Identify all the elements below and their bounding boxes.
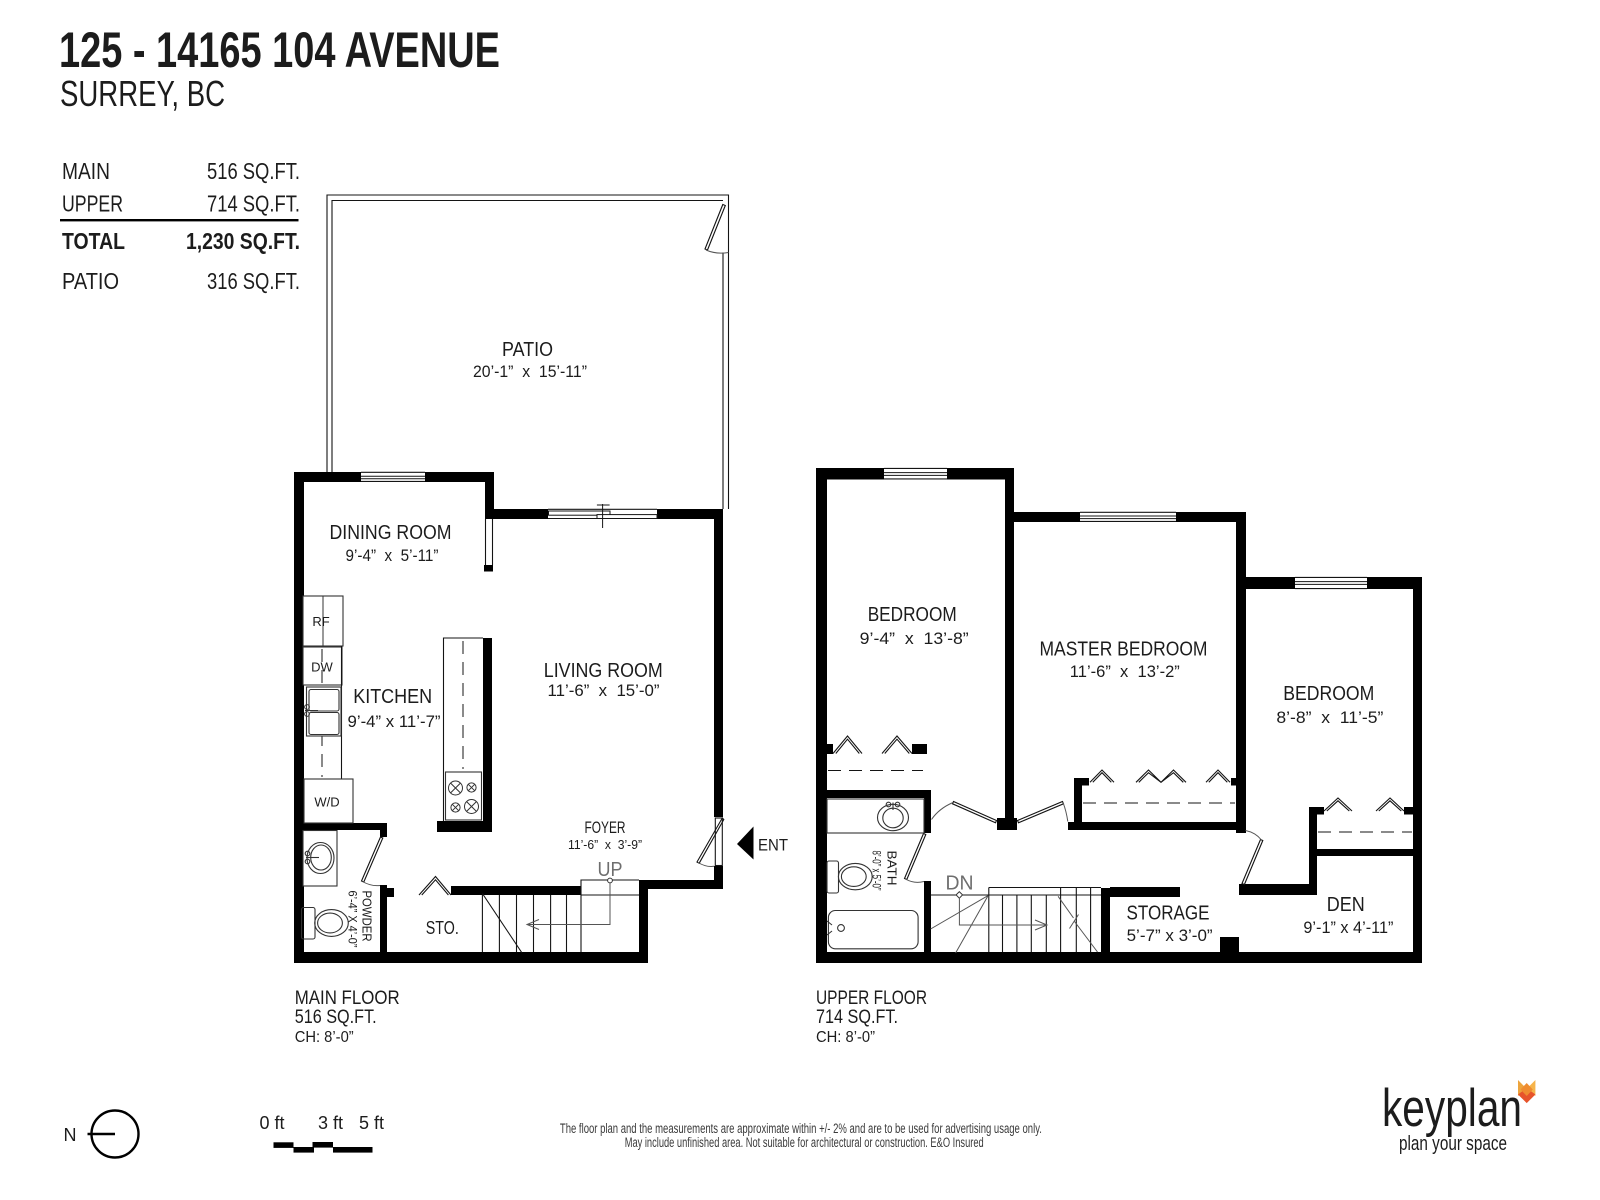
- svg-text:ENT: ENT: [758, 836, 788, 855]
- svg-text:CH: 8’-0”: CH: 8’-0”: [816, 1029, 875, 1046]
- svg-text:11’-6” x 3’-9”: 11’-6” x 3’-9”: [568, 837, 642, 852]
- svg-text:20’-1” x 15’-11”: 20’-1” x 15’-11”: [473, 362, 587, 381]
- svg-text:5 ft: 5 ft: [359, 1113, 384, 1133]
- svg-text:CH: 8’-0”: CH: 8’-0”: [295, 1029, 354, 1046]
- svg-text:MASTER BEDROOM: MASTER BEDROOM: [1040, 639, 1208, 661]
- svg-text:BEDROOM: BEDROOM: [868, 604, 957, 626]
- svg-text:keyplan: keyplan: [1382, 1079, 1522, 1138]
- svg-text:RF: RF: [312, 614, 329, 629]
- svg-text:UP: UP: [598, 859, 623, 881]
- svg-text:125 - 14165 104 AVENUE: 125 - 14165 104 AVENUE: [59, 22, 500, 78]
- svg-text:9’-4” x 13’-8”: 9’-4” x 13’-8”: [860, 629, 969, 648]
- svg-text:UPPER: UPPER: [62, 191, 123, 217]
- svg-text:STORAGE: STORAGE: [1127, 903, 1210, 925]
- svg-text:LIVING ROOM: LIVING ROOM: [544, 660, 663, 682]
- svg-text:BEDROOM: BEDROOM: [1283, 683, 1374, 705]
- svg-text:PATIO: PATIO: [62, 268, 119, 294]
- svg-text:May include unfinished area. N: May include unfinished area. Not suitabl…: [625, 1135, 984, 1150]
- svg-text:N: N: [64, 1125, 77, 1145]
- svg-text:plan your space: plan your space: [1399, 1132, 1507, 1155]
- svg-text:11’-6” x 15’-0”: 11’-6” x 15’-0”: [548, 681, 660, 700]
- svg-text:PATIO: PATIO: [502, 339, 553, 361]
- svg-text:UPPER FLOOR: UPPER FLOOR: [816, 987, 927, 1009]
- svg-text:516 SQ.FT.: 516 SQ.FT.: [295, 1007, 377, 1028]
- svg-text:W/D: W/D: [314, 795, 339, 810]
- svg-text:8’-0” x 5’-0”: 8’-0” x 5’-0”: [870, 851, 884, 891]
- svg-text:0 ft: 0 ft: [259, 1113, 284, 1133]
- svg-text:The floor plan and the measure: The floor plan and the measurements are …: [560, 1121, 1042, 1136]
- svg-text:714 SQ.FT.: 714 SQ.FT.: [207, 191, 300, 217]
- svg-text:STO.: STO.: [426, 917, 459, 938]
- svg-text:5’-7” x 3’-0”: 5’-7” x 3’-0”: [1127, 926, 1213, 945]
- svg-text:DEN: DEN: [1327, 894, 1365, 916]
- svg-text:9’-4” x 5’-11”: 9’-4” x 5’-11”: [346, 546, 439, 565]
- svg-text:8’-8” x 11’-5”: 8’-8” x 11’-5”: [1276, 708, 1383, 727]
- svg-text:516 SQ.FT.: 516 SQ.FT.: [207, 158, 300, 184]
- svg-text:SURREY, BC: SURREY, BC: [60, 73, 225, 114]
- svg-text:1,230 SQ.FT.: 1,230 SQ.FT.: [186, 228, 300, 254]
- svg-text:316 SQ.FT.: 316 SQ.FT.: [207, 268, 300, 294]
- svg-text:714 SQ.FT.: 714 SQ.FT.: [816, 1007, 898, 1028]
- svg-text:9’-4” x 11’-7”: 9’-4” x 11’-7”: [348, 712, 441, 731]
- svg-text:9’-1” x 4’-11”: 9’-1” x 4’-11”: [1303, 918, 1393, 937]
- svg-text:KITCHEN: KITCHEN: [353, 686, 432, 708]
- svg-text:BATH: BATH: [885, 851, 900, 886]
- svg-text:TOTAL: TOTAL: [62, 228, 125, 254]
- svg-text:6’-4” X 4’-0”: 6’-4” X 4’-0”: [346, 891, 360, 948]
- svg-text:MAIN: MAIN: [62, 158, 110, 184]
- svg-text:DN: DN: [946, 873, 974, 895]
- svg-text:3 ft: 3 ft: [318, 1113, 343, 1133]
- svg-text:POWDER: POWDER: [360, 891, 375, 942]
- svg-text:MAIN FLOOR: MAIN FLOOR: [295, 987, 400, 1009]
- svg-text:11’-6” x 13’-2”: 11’-6” x 13’-2”: [1070, 662, 1180, 681]
- svg-text:FOYER: FOYER: [585, 819, 626, 837]
- svg-text:DINING ROOM: DINING ROOM: [330, 522, 452, 544]
